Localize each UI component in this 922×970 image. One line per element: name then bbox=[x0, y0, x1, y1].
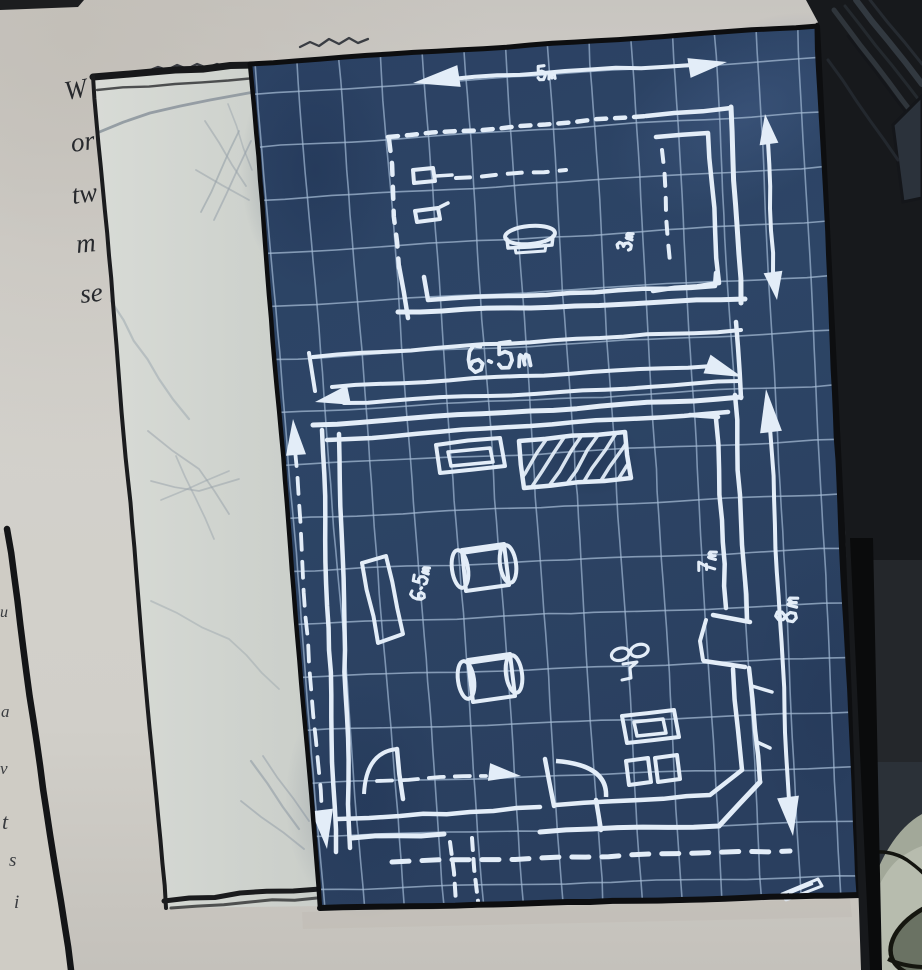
svg-text:m: m bbox=[74, 227, 97, 259]
svg-text:u: u bbox=[0, 604, 8, 621]
svg-text:i: i bbox=[14, 892, 19, 913]
svg-text:v: v bbox=[0, 759, 8, 778]
svg-text:se: se bbox=[78, 277, 104, 309]
svg-text:s: s bbox=[9, 850, 16, 871]
svg-text:or: or bbox=[69, 125, 97, 158]
svg-text:tw: tw bbox=[70, 177, 99, 210]
svg-text:a: a bbox=[1, 702, 10, 721]
svg-text:t: t bbox=[2, 809, 9, 834]
